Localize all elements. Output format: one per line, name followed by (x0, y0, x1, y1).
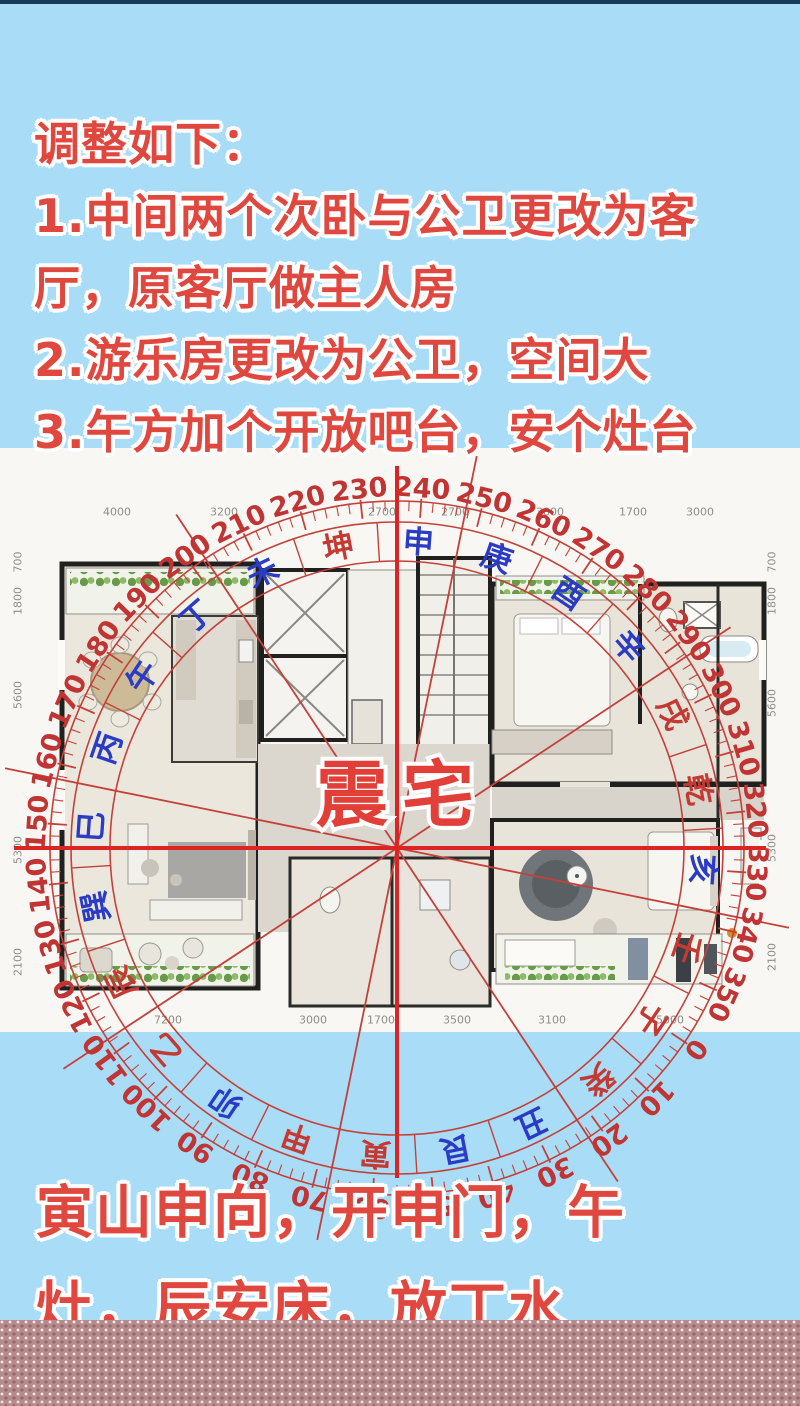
feng-shui-floorplan-image: 调整如下： 1.中间两个次卧与公卫更改为客 厅，原客厅做主人房 2.游乐房更改为… (0, 0, 800, 1406)
degree-label: 100 (116, 1076, 178, 1137)
dimension-label: 1700 (619, 506, 647, 519)
bottom-text-line: 寅山申向，开申门，午 (36, 1165, 796, 1261)
degree-label: 90 (171, 1123, 219, 1170)
mountain-sector-line (612, 1038, 641, 1064)
mountain-label: 亥 (683, 853, 721, 886)
dimension-label: 1800 (12, 587, 25, 615)
degree-label: 330 (739, 844, 774, 902)
dimension-label: 5600 (766, 689, 779, 717)
mountain-sector-line (488, 1120, 500, 1157)
dimension-label: 1800 (766, 587, 779, 615)
degree-label: 240 (393, 471, 451, 506)
degree-label: 150 (20, 794, 55, 852)
mountain-label: 卯 (203, 1078, 249, 1125)
dimension-label: 5600 (12, 681, 25, 709)
top-text-line: 3.午方加个开放吧台，安个灶台 (34, 396, 774, 468)
dimension-label: 3000 (299, 1014, 327, 1027)
dimension-label: 700 (766, 552, 779, 573)
degree-tick (183, 1114, 189, 1122)
mountain-sector-line (252, 1105, 269, 1140)
degree-tick (655, 1065, 663, 1071)
house-type-label: 震宅 (316, 753, 488, 837)
top-text-line: 调整如下： (34, 108, 774, 180)
mountain-sector-line (332, 1129, 340, 1167)
top-text-line: 2.游乐房更改为公卫，空间大 (34, 324, 774, 396)
degree-tick (224, 1140, 229, 1149)
dimension-label: 1700 (367, 1014, 395, 1027)
degree-tick (566, 1140, 571, 1149)
dimension-label: 700 (12, 552, 25, 573)
degree-tick (670, 1046, 678, 1052)
degree-label: 230 (330, 472, 389, 509)
degree-tick (576, 1134, 581, 1142)
mountain-label: 申 (402, 524, 435, 562)
mountain-sector-line (555, 1087, 577, 1120)
dimension-label: 3000 (686, 506, 714, 519)
top-text-line: 厅，原客厅做主人房 (34, 252, 774, 324)
mountain-label: 乙 (142, 1025, 190, 1072)
mountain-label: 癸 (574, 1055, 621, 1103)
dimension-label: 2100 (766, 943, 779, 971)
dimension-label: 2700 (368, 506, 396, 519)
top-text-block: 调整如下： 1.中间两个次卧与公卫更改为客 厅，原客厅做主人房 2.游乐房更改为… (34, 108, 774, 468)
degree-label: 140 (21, 856, 58, 915)
mountain-label: 艮 (436, 1128, 474, 1169)
mountain-label: 巳 (73, 810, 111, 843)
dimension-label: 3500 (443, 1014, 471, 1027)
degree-tick (234, 1146, 239, 1155)
degree-label: 0 (677, 1033, 713, 1066)
dimension-label: 4000 (103, 506, 131, 519)
degree-tick (614, 1106, 620, 1114)
halftone-band (0, 1320, 800, 1406)
dimension-label: 2100 (12, 948, 25, 976)
degree-label: 320 (737, 781, 774, 840)
top-text-line: 1.中间两个次卧与公卫更改为客 (34, 180, 774, 252)
degree-tick (663, 1055, 671, 1061)
dimension-label: 3100 (538, 1014, 566, 1027)
mountain-sector-line (181, 1063, 207, 1092)
degree-label: 20 (584, 1116, 633, 1163)
mountain-label: 丑 (509, 1100, 553, 1146)
degree-tick (622, 1098, 629, 1105)
